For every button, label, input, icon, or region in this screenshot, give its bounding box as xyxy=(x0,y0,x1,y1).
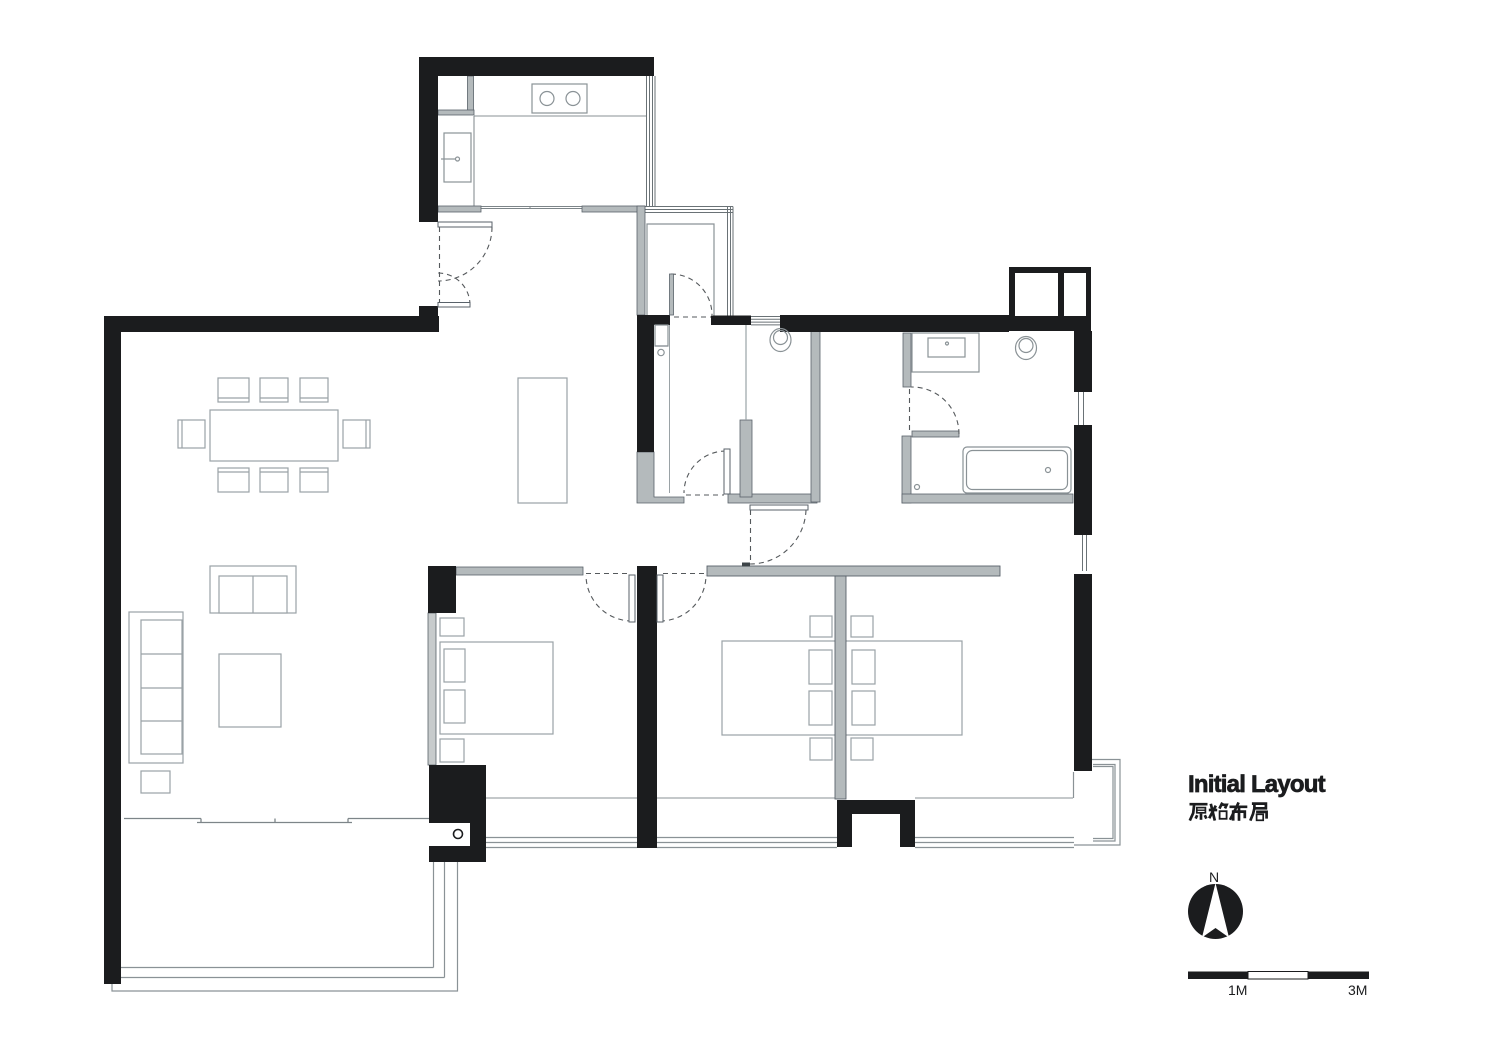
svg-text:1M: 1M xyxy=(1228,982,1247,998)
svg-text:Initial Layout: Initial Layout xyxy=(1188,771,1326,798)
svg-text:3M: 3M xyxy=(1348,982,1367,998)
svg-text:N: N xyxy=(1209,869,1219,885)
